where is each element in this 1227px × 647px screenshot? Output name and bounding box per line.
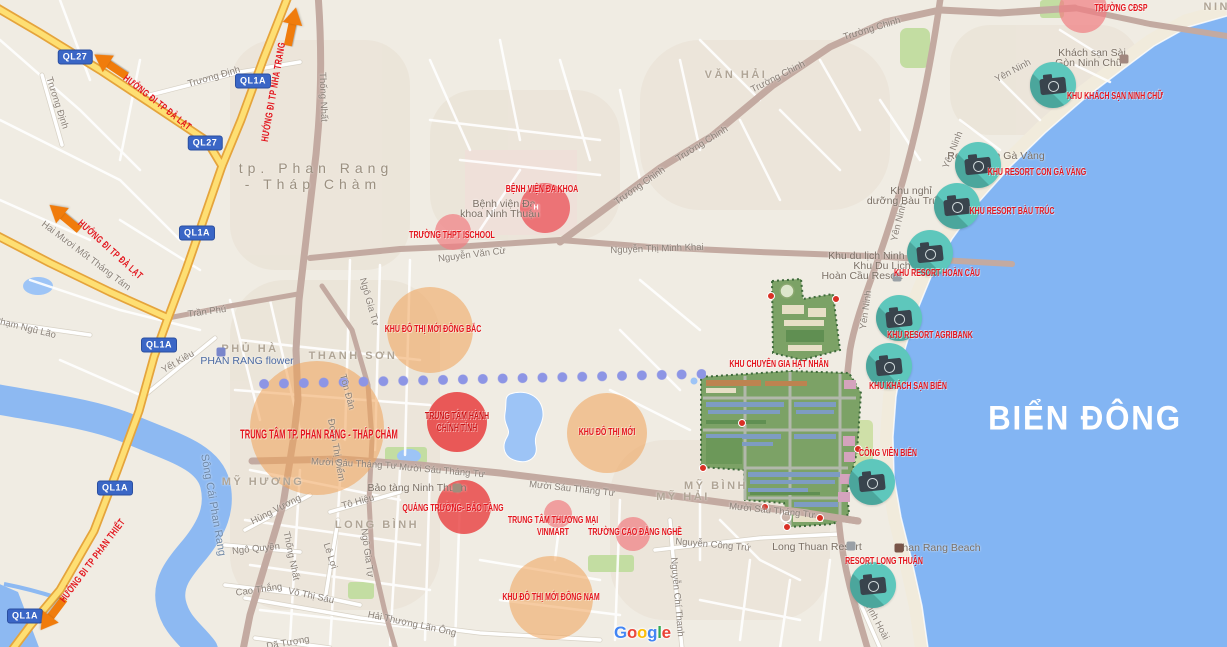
highlight-circle bbox=[520, 183, 570, 233]
road-badge: QL1A bbox=[97, 481, 133, 496]
camera-glyph bbox=[916, 245, 944, 264]
road-badge: QL1A bbox=[235, 74, 271, 89]
camera-glyph bbox=[943, 198, 971, 217]
camera-icon[interactable] bbox=[934, 183, 980, 229]
camera-glyph bbox=[875, 358, 903, 377]
google-logo-letter: g bbox=[647, 623, 657, 642]
camera-icon[interactable] bbox=[907, 230, 953, 276]
highlight-circle bbox=[427, 392, 487, 452]
map-pin-icon bbox=[767, 292, 775, 300]
camera-icon[interactable] bbox=[876, 295, 922, 341]
map-pin-icon bbox=[699, 464, 707, 472]
camera-glyph bbox=[859, 577, 887, 596]
highlight-circle bbox=[567, 393, 647, 473]
road-badge: QL1A bbox=[141, 338, 177, 353]
camera-icon[interactable] bbox=[955, 142, 1001, 188]
google-logo-letter: o bbox=[637, 623, 647, 642]
camera-glyph bbox=[964, 157, 992, 176]
camera-glyph bbox=[885, 310, 913, 329]
google-logo-letter: e bbox=[662, 623, 671, 642]
map-pin-icon bbox=[738, 419, 746, 427]
highlight-circle bbox=[544, 500, 572, 528]
highlight-circle bbox=[435, 214, 471, 250]
camera-glyph bbox=[858, 474, 886, 493]
road-badge: QL1A bbox=[179, 226, 215, 241]
map-pin-icon bbox=[832, 295, 840, 303]
google-logo[interactable]: Google bbox=[614, 623, 671, 643]
camera-icon[interactable] bbox=[849, 459, 895, 505]
map-pin-icon bbox=[761, 503, 769, 511]
museum-icon bbox=[453, 484, 462, 493]
hotel-icon bbox=[1120, 55, 1129, 64]
resort-icon bbox=[847, 542, 856, 551]
highlight-circle bbox=[387, 287, 473, 373]
map-pin-icon bbox=[783, 523, 791, 531]
highlight-circle bbox=[509, 556, 593, 640]
hospital-icon: H bbox=[532, 204, 541, 213]
map-screenshot: tp. Phan Rang - Tháp Chàm BIỂN ĐÔNG Trươ… bbox=[0, 0, 1227, 647]
highlight-circle bbox=[437, 480, 491, 534]
map-pin-icon bbox=[816, 514, 824, 522]
camera-icon[interactable] bbox=[850, 562, 896, 608]
road-badge: QL27 bbox=[188, 136, 223, 151]
resort-icon bbox=[893, 273, 902, 282]
beach-icon bbox=[895, 544, 904, 553]
highlight-circle bbox=[616, 517, 650, 551]
flower-icon bbox=[217, 348, 226, 357]
google-logo-letter: G bbox=[614, 623, 627, 642]
google-logo-letter: o bbox=[627, 623, 637, 642]
camera-glyph bbox=[1039, 77, 1067, 96]
camera-icon[interactable] bbox=[1030, 62, 1076, 108]
camera-icon[interactable] bbox=[866, 343, 912, 389]
map-pin-icon bbox=[854, 445, 862, 453]
roundabout bbox=[781, 512, 791, 522]
